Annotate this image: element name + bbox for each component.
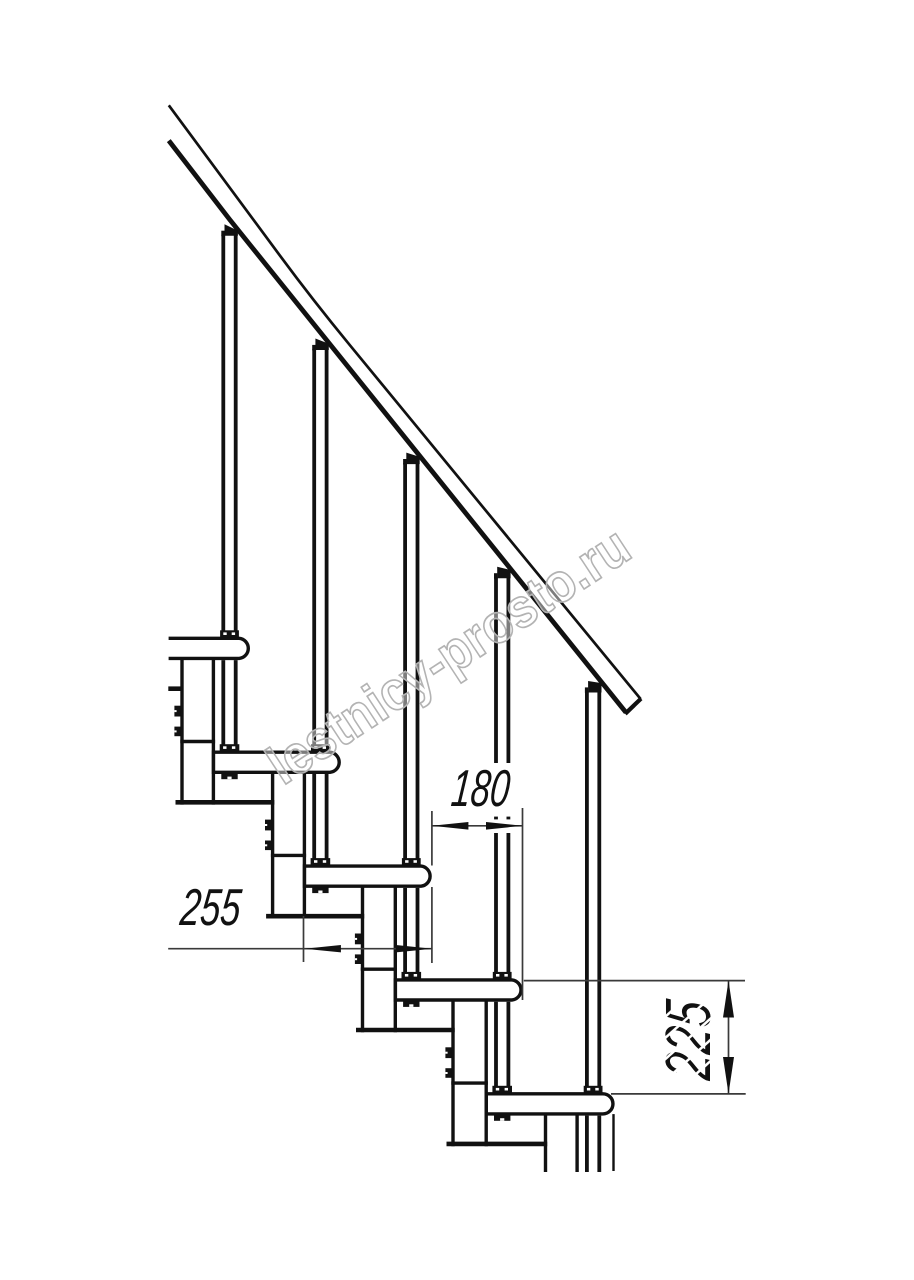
svg-text:255: 255 bbox=[177, 879, 244, 937]
svg-text:180: 180 bbox=[449, 760, 513, 818]
svg-text:225: 225 bbox=[652, 997, 724, 1084]
